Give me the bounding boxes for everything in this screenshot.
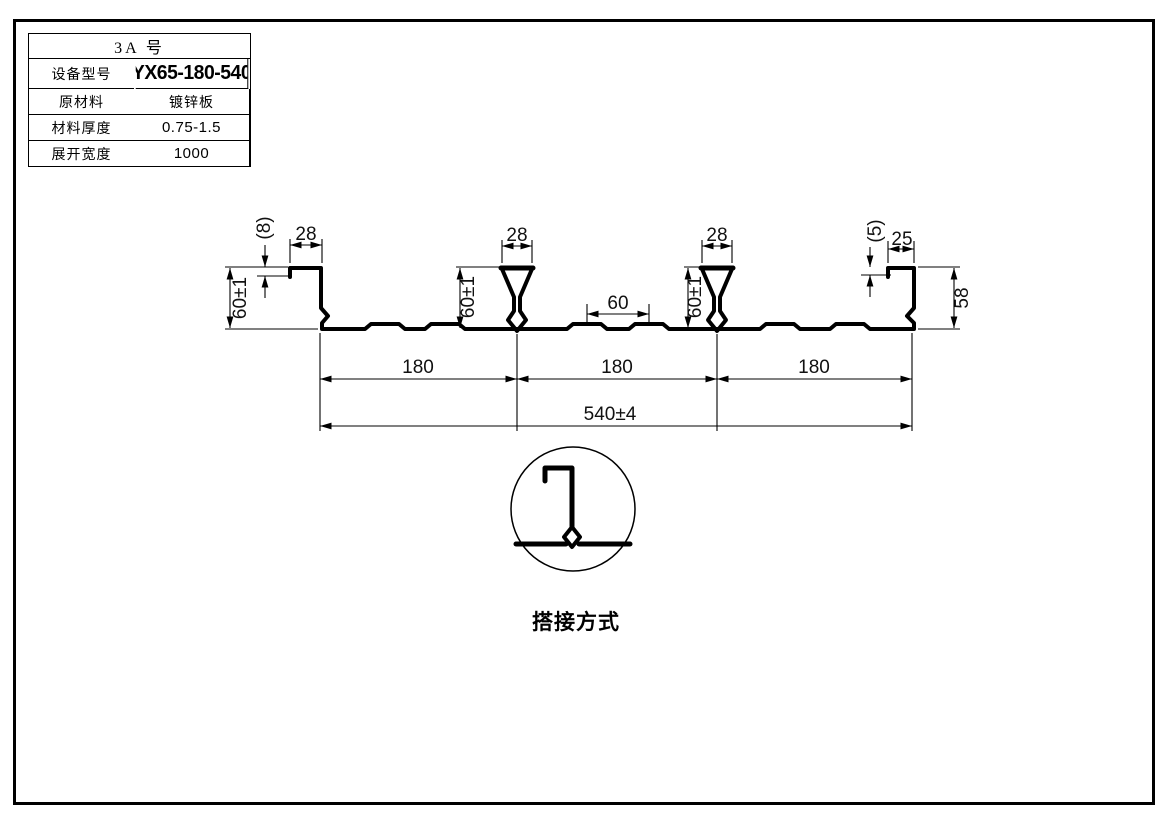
detail-caption: 搭接方式 [496, 606, 656, 636]
dim-label-left-height: 60±1 [230, 277, 251, 319]
dim-label-right-height: 58 [952, 287, 973, 308]
dim-label-emboss-spacing: 60 [607, 293, 628, 314]
dim-label-right-lip: (5) [865, 219, 886, 242]
dim-label-left-lip: (8) [254, 216, 275, 239]
detail-hook [545, 468, 572, 527]
dim-label-rib1-width: 28 [506, 225, 527, 246]
profile-drawing: (8) 28 60±1 28 60±1 60 28 60±1 (5) 25 58… [0, 0, 1169, 827]
dim-label-span1: 180 [402, 357, 434, 378]
dim-label-rib1-height: 60±1 [458, 276, 479, 318]
lap-joint-detail [511, 447, 635, 571]
dimension-labels: (8) 28 60±1 28 60±1 60 28 60±1 (5) 25 58… [230, 216, 973, 425]
rib-1 [501, 268, 533, 331]
dim-left-lip [257, 245, 292, 298]
dim-label-span2: 180 [601, 357, 633, 378]
dim-label-overall: 540±4 [584, 404, 637, 425]
dim-label-span3: 180 [798, 357, 830, 378]
rib-2-body [702, 269, 732, 331]
rib-1-body [502, 269, 532, 331]
dimensions [225, 239, 960, 431]
drawing-sheet: { "table": { "title": "3A 号", "rows": [ … [0, 0, 1169, 827]
dim-label-left-top: 28 [295, 224, 316, 245]
profile-sheet-path [290, 268, 914, 329]
dim-label-right-top: 25 [891, 229, 912, 250]
profile-outline [290, 268, 914, 329]
dim-label-rib2-height: 60±1 [685, 276, 706, 318]
dim-label-rib2-width: 28 [706, 225, 727, 246]
